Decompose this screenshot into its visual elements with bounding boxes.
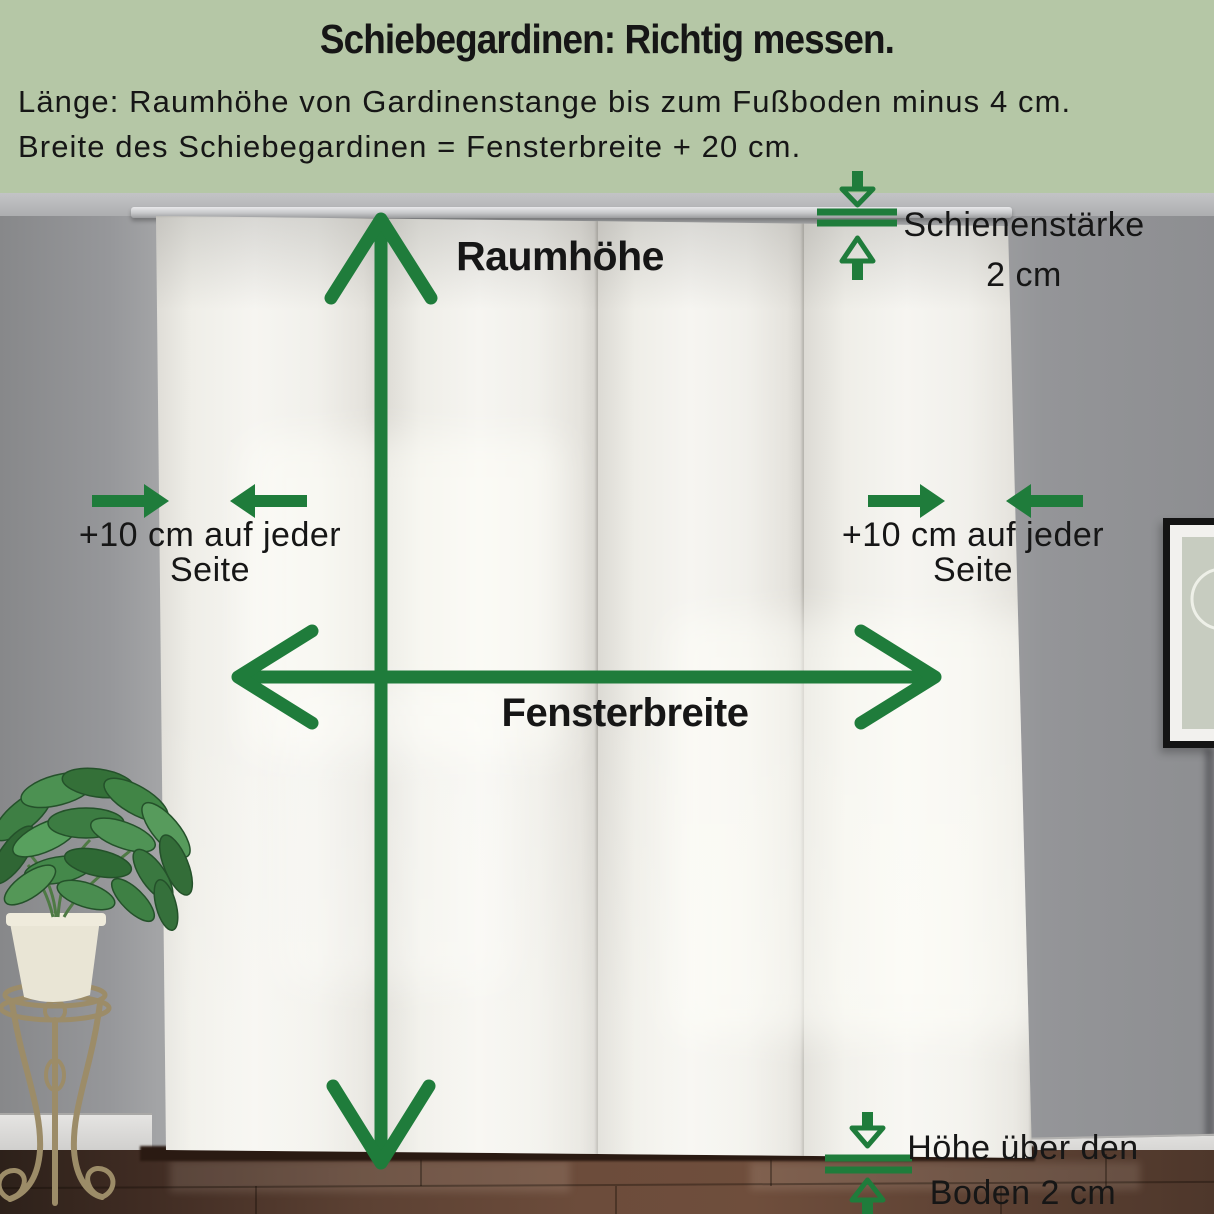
right-offset-label: +10 cm auf jeder Seite [828,518,1118,588]
floor-clearance-line-1: Höhe über den [898,1126,1148,1171]
curtain-rail [131,207,1012,218]
picture-frame [1163,518,1214,748]
infographic-canvas: Schiebegardinen: Richtig messen. Länge: … [0,0,1214,1214]
curtain-shading [150,216,1032,1158]
sliding-curtain-panels [150,216,1032,1158]
circle-artwork-icon [1182,537,1214,729]
plant-stand [0,984,113,1203]
rail-thickness-line-2: 2 cm [900,250,1148,300]
left-offset-line-1: +10 cm auf jeder [65,518,355,553]
instruction-line-2: Breite des Schiebegardinen = Fensterbrei… [18,129,801,165]
header-band: Schiebegardinen: Richtig messen. Länge: … [0,0,1214,193]
plant-leaves [0,764,199,933]
framed-artwork [1182,537,1214,729]
right-offset-line-2: Seite [828,553,1118,588]
right-offset-line-1: +10 cm auf jeder [828,518,1118,553]
window-width-label: Fensterbreite [470,691,780,736]
tile-grout-line [615,1186,617,1214]
rail-thickness-label: Schienenstärke 2 cm [900,200,1148,300]
floor-clearance-line-2: Boden 2 cm [898,1171,1148,1214]
floor-clearance-label: Höhe über den Boden 2 cm [898,1126,1148,1214]
page-title: Schiebegardinen: Richtig messen. [320,16,894,63]
wall-corner-shadow [1205,748,1214,1178]
instruction-line-1: Länge: Raumhöhe von Gardinenstange bis z… [18,84,1071,120]
room-height-label: Raumhöhe [425,233,695,280]
left-offset-line-2: Seite [65,553,355,588]
left-offset-label: +10 cm auf jeder Seite [65,518,355,588]
page-title-wrap: Schiebegardinen: Richtig messen. [0,16,1214,63]
rail-thickness-line-1: Schienenstärke [900,200,1148,250]
potted-plant [0,745,200,1214]
tile-grout-line [255,1186,257,1214]
